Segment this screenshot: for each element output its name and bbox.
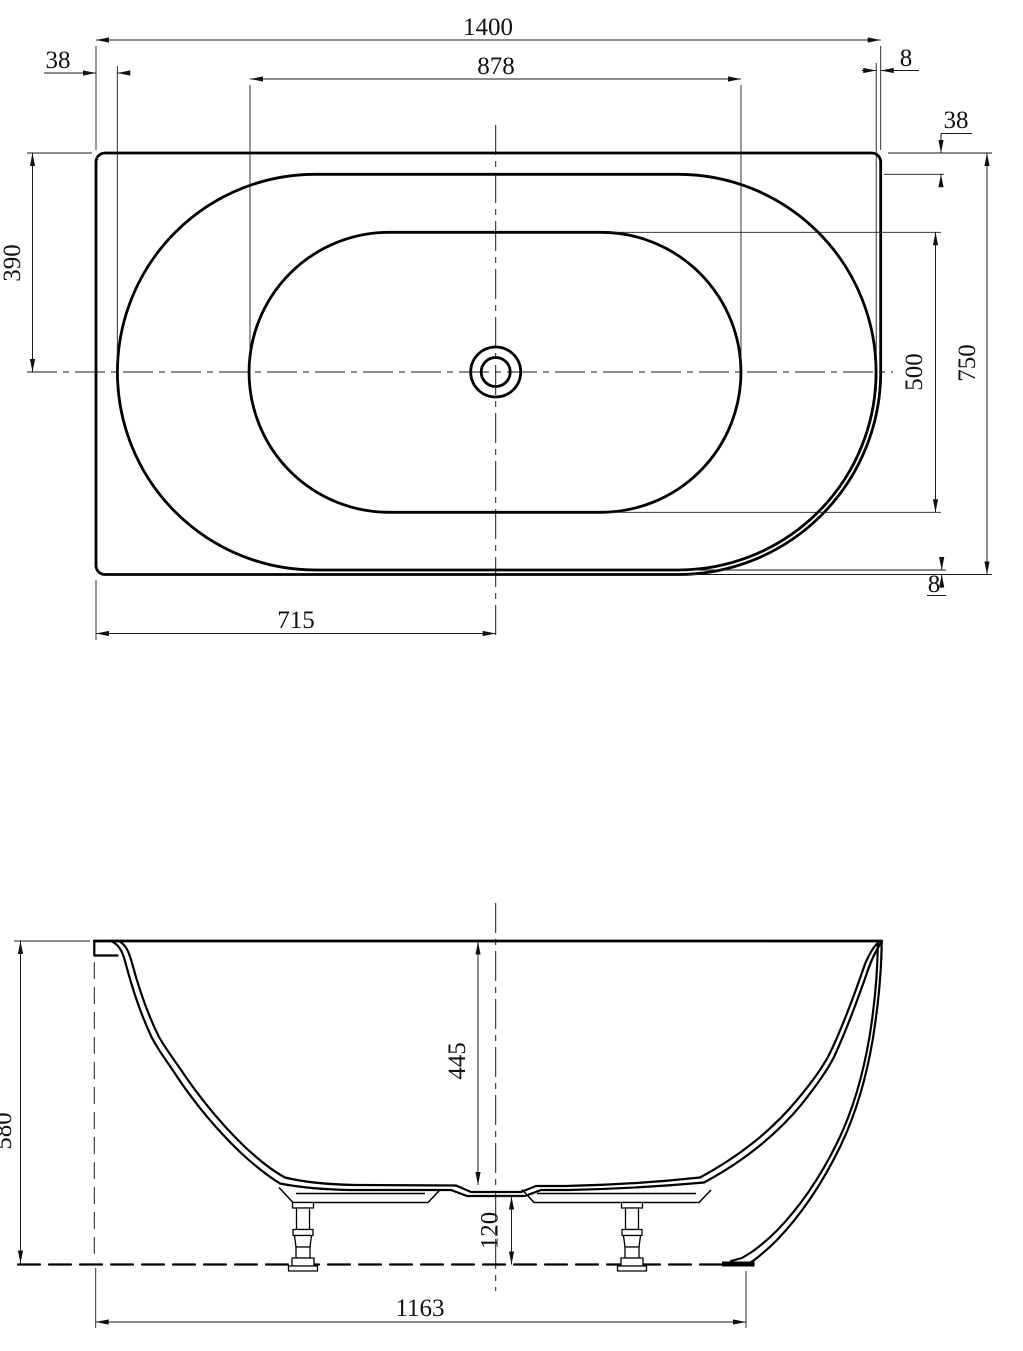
dim-overall-depth: 750 — [688, 153, 992, 575]
back-shell-ground-contact — [722, 1262, 755, 1267]
adjustable-foot-right — [618, 1203, 647, 1272]
dim-base-clearance-label: 120 — [477, 1212, 504, 1250]
dim-rim-offset-bottom-label: 8 — [928, 571, 941, 598]
dim-overall-height-label: 580 — [0, 1112, 17, 1150]
dim-center-from-left: 715 — [96, 580, 496, 640]
dim-rim-offset-right: 8 — [862, 45, 919, 367]
dim-rim-offset-right-label: 8 — [900, 45, 913, 72]
dim-base-length-label: 1163 — [395, 1295, 444, 1322]
adjustable-foot-left — [289, 1203, 318, 1272]
back-wall-inner2 — [704, 943, 881, 1183]
dim-base-clearance: 120 — [477, 1197, 520, 1265]
dim-rim-offset-top: 38 — [884, 107, 992, 187]
support-pan-right — [522, 1190, 711, 1203]
front-wall-inner — [119, 941, 285, 1178]
dim-overall-depth-label: 750 — [954, 344, 981, 382]
back-wall-inner — [700, 942, 880, 1178]
dim-rim-offset-top-label: 38 — [944, 107, 969, 134]
dim-base-length: 1163 — [96, 1268, 746, 1328]
dim-basin-depth-label: 500 — [901, 353, 928, 391]
side-view: 580 445 120 1163 — [0, 903, 882, 1328]
bathtub-technical-drawing-page: 1400 878 38 8 — [0, 0, 1023, 1351]
plan-view: 1400 878 38 8 — [0, 14, 992, 641]
dim-inner-depth-label: 445 — [444, 1042, 471, 1080]
dim-center-from-top: 390 — [0, 153, 92, 372]
dim-overall-width-label: 1400 — [463, 14, 513, 41]
dim-overall-width: 1400 — [96, 14, 881, 150]
dim-basin-width-label: 878 — [477, 53, 515, 80]
dim-center-from-top-label: 390 — [0, 244, 26, 282]
bathtub-technical-drawing: 1400 878 38 8 — [0, 0, 1023, 1351]
dim-inner-depth: 445 — [444, 942, 478, 1186]
dim-center-from-left-label: 715 — [277, 607, 315, 634]
dim-overall-height: 580 — [0, 941, 90, 1264]
dim-rim-offset-left: 38 — [44, 47, 129, 363]
dim-rim-offset-left-label: 38 — [46, 47, 71, 74]
